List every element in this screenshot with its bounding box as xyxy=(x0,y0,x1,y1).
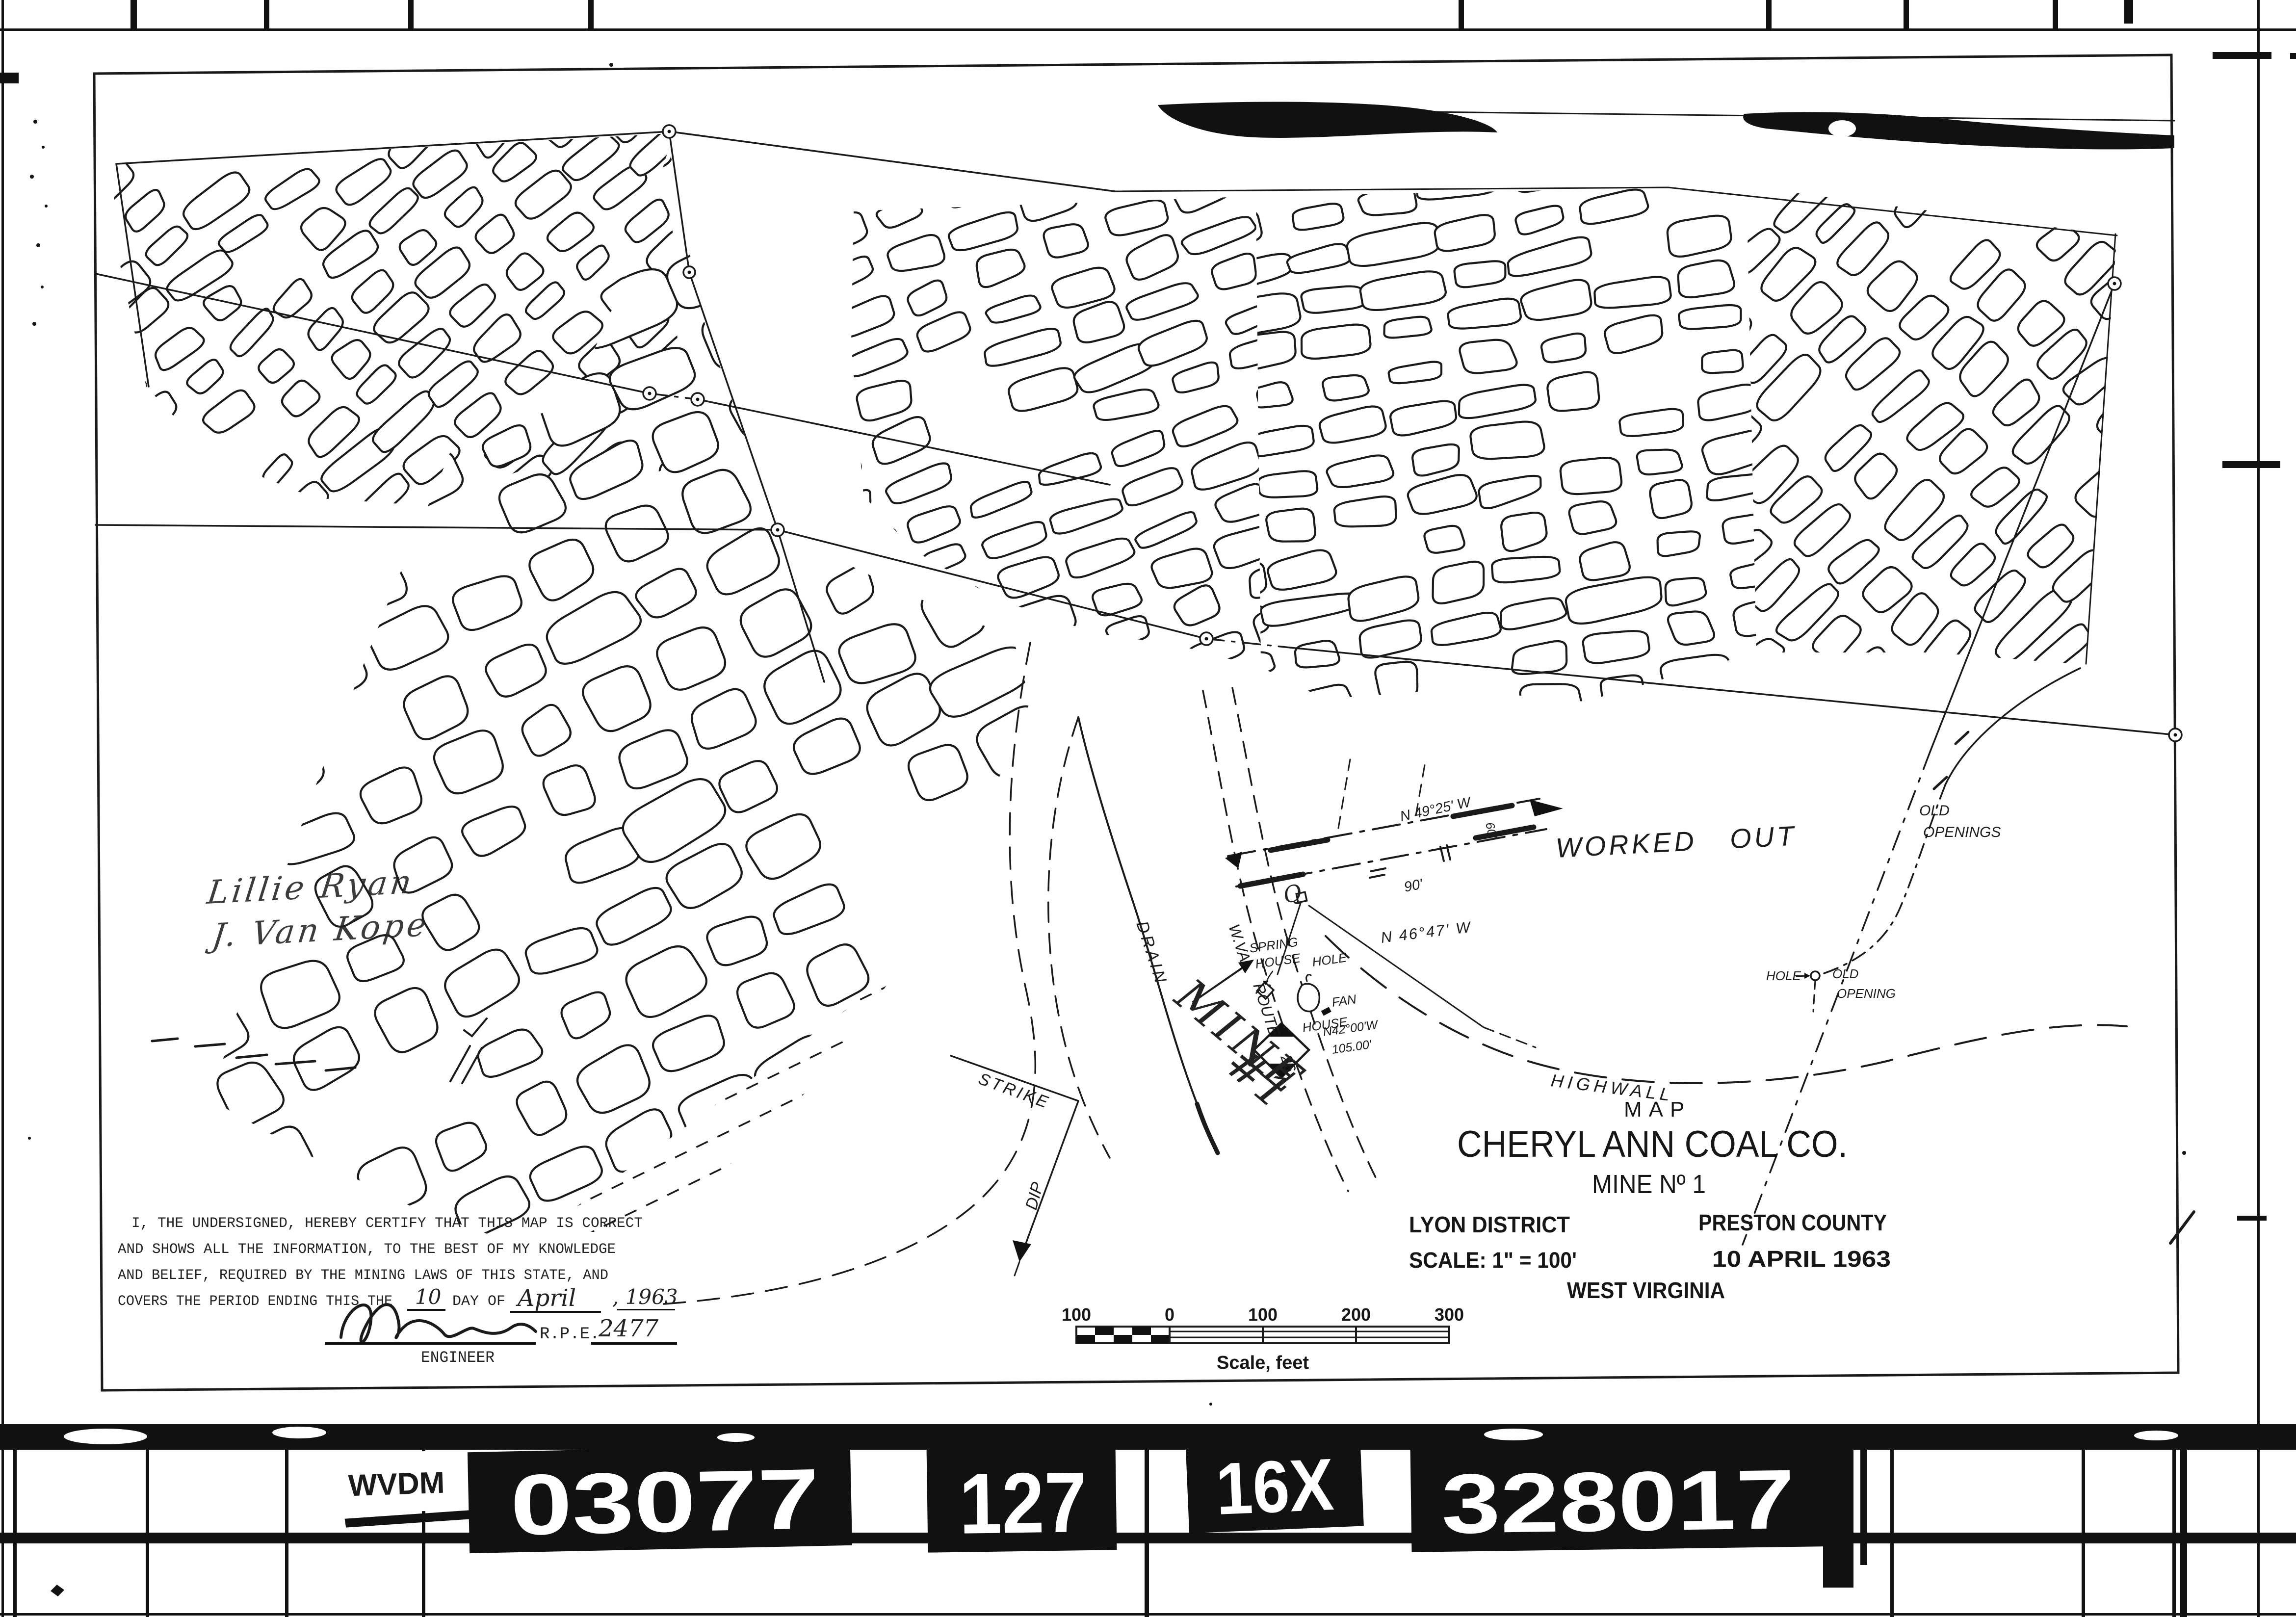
bearing-label: N 49°25' W xyxy=(1399,794,1473,825)
certification-license: 2477 xyxy=(598,1315,659,1342)
coal-pillar xyxy=(1580,190,1648,224)
coal-pillar xyxy=(1515,206,1563,235)
coal-pillar xyxy=(730,375,797,436)
old-openings-label: OLD xyxy=(1919,803,1950,819)
coal-pillar xyxy=(1512,641,1566,674)
coal-pillar xyxy=(1295,641,1339,667)
coal-pillar xyxy=(1302,287,1366,313)
coal-pillar xyxy=(1561,458,1621,494)
coal-pillar xyxy=(284,482,328,524)
coal-pillar xyxy=(1412,444,1459,476)
coal-pillar xyxy=(2018,301,2064,346)
coal-pillar xyxy=(597,888,671,945)
coal-pillar xyxy=(1303,685,1351,709)
coal-pillar xyxy=(265,169,319,209)
coal-pillar xyxy=(757,432,823,490)
coal-pillar xyxy=(1050,499,1122,534)
coal-pillar xyxy=(577,246,608,280)
coal-pillar xyxy=(146,227,187,265)
hole-outline xyxy=(1298,984,1319,1011)
mine-number-title: MINE Nº 1 xyxy=(1592,1170,1706,1199)
coal-pillar xyxy=(930,648,1029,717)
coal-pillar xyxy=(445,950,519,1017)
scale-tick-label: 200 xyxy=(1341,1304,1371,1325)
mine-workings-cluster xyxy=(797,172,1316,668)
q-mark: Q xyxy=(1280,879,1305,909)
coal-pillar xyxy=(1661,655,1732,692)
coal-pillar xyxy=(1349,576,1419,621)
coal-pillar xyxy=(1044,224,1088,257)
coal-pillar xyxy=(682,470,751,533)
coal-pillar xyxy=(91,161,133,203)
coal-pillar xyxy=(1347,223,1439,266)
coal-pillar xyxy=(1323,375,1369,400)
coal-pillar xyxy=(835,296,894,338)
svg-text:OPENINGS: OPENINGS xyxy=(1923,824,2001,840)
strike-label: STRIKE xyxy=(976,1069,1053,1113)
scale-tick-label: 100 xyxy=(1062,1304,1091,1325)
coal-pillar xyxy=(1094,390,1158,420)
coal-pillar xyxy=(1435,215,1495,251)
coal-pillar xyxy=(636,569,696,618)
worked-out-label: WORKED OUT xyxy=(1555,820,1797,863)
coal-pillar xyxy=(692,689,756,749)
coal-pillar xyxy=(1408,475,1477,514)
coal-pillar xyxy=(667,245,739,308)
coal-pillar xyxy=(1846,338,1900,390)
mine-workings xyxy=(74,99,2160,1297)
coal-pillar xyxy=(1679,305,1741,329)
reel-number: 03077 xyxy=(509,1451,820,1553)
agency-code: WVDM xyxy=(348,1466,445,1503)
coal-pillar xyxy=(1501,513,1546,551)
coal-pillar xyxy=(369,606,448,669)
coal-pillar xyxy=(1455,261,1506,287)
coal-pillar xyxy=(429,362,478,407)
coal-pillar xyxy=(611,99,658,142)
coal-pillar xyxy=(832,529,899,566)
coal-pillar xyxy=(1258,471,1317,497)
item-number: 328017 xyxy=(1441,1452,1796,1551)
coal-pillar xyxy=(1521,280,1591,320)
certification-block: I, THE UNDERSIGNED, HEREBY CERTIFY THAT … xyxy=(118,1215,678,1367)
coal-pillar xyxy=(1658,531,1700,556)
coal-pillar xyxy=(476,215,514,253)
coal-pillar xyxy=(827,566,873,614)
coal-pillar xyxy=(370,188,418,234)
coal-pillar xyxy=(887,235,944,271)
coal-pillar xyxy=(1009,368,1077,411)
projected-room-dash xyxy=(458,938,988,1196)
certification-line: AND SHOWS ALL THE INFORMATION, TO THE BE… xyxy=(118,1241,616,1258)
coal-pillar xyxy=(2028,524,2074,567)
coal-pillar xyxy=(620,730,687,788)
certification-line: AND BELIEF, REQUIRED BY THE MINING LAWS … xyxy=(118,1267,608,1284)
scale-caption: Scale, feet xyxy=(1217,1353,1309,1373)
coal-pillar xyxy=(375,988,437,1052)
coal-pillar xyxy=(358,1148,426,1214)
coal-pillar xyxy=(1460,340,1516,373)
coal-pillar xyxy=(478,1030,543,1077)
coal-pillar xyxy=(436,1123,486,1171)
coal-pillar xyxy=(1019,184,1077,221)
coal-pillar xyxy=(1187,632,1244,667)
coal-pillar xyxy=(1666,578,1706,605)
coal-pillar xyxy=(807,944,868,1006)
coal-pillar xyxy=(1951,544,1995,585)
coal-pillar xyxy=(1459,385,1536,418)
coal-pillar xyxy=(483,425,530,467)
coal-pillar xyxy=(657,627,725,690)
coal-pillar xyxy=(1375,662,1417,701)
coal-pillar xyxy=(179,461,230,511)
coal-pillar xyxy=(1520,684,1582,716)
coal-pillar xyxy=(583,666,651,731)
film-code-strip: WVDM 03077 127 16X 328017 xyxy=(0,1424,2296,1617)
reduction-factor: 16X xyxy=(1214,1443,1335,1530)
coal-pillar xyxy=(217,1063,284,1125)
coal-pillar xyxy=(1541,334,1586,363)
fan-label: FAN xyxy=(1331,991,1357,1010)
code-plate: 328017 xyxy=(1410,1441,1826,1552)
coal-pillar xyxy=(183,173,249,230)
coal-pillar xyxy=(1960,658,1997,697)
coal-pillar xyxy=(352,270,393,313)
coal-pillar xyxy=(1126,235,1177,280)
coal-pillar xyxy=(1173,406,1237,446)
hole-symbol xyxy=(1811,971,1820,980)
coal-pillar xyxy=(1389,362,1441,384)
state: WEST VIRGINIA xyxy=(1567,1278,1725,1303)
coal-pillar xyxy=(548,213,594,251)
coal-pillar xyxy=(253,1127,313,1187)
coal-pillar xyxy=(1501,598,1566,629)
coal-pillar xyxy=(1817,204,1855,243)
coal-pillar xyxy=(548,111,587,147)
coal-pillar xyxy=(517,1082,566,1135)
coal-pillar xyxy=(361,767,421,823)
coal-pillar xyxy=(1868,261,1917,311)
coal-pillar xyxy=(1583,631,1649,663)
coal-pillar xyxy=(1074,302,1124,342)
coal-pillar xyxy=(1112,431,1164,466)
handwriting-line: Lillie Ryan xyxy=(205,862,417,912)
coal-pillar xyxy=(1750,559,1799,611)
coal-pillar xyxy=(1432,613,1501,645)
coal-pillar xyxy=(1360,621,1421,658)
coal-pillar xyxy=(1993,380,2039,425)
coal-pillar xyxy=(1192,443,1260,490)
coal-pillar xyxy=(522,705,571,756)
coal-pillar xyxy=(453,576,522,630)
coal-pillar xyxy=(336,159,391,205)
coal-pillar xyxy=(499,474,566,532)
coal-pillar xyxy=(626,946,706,1017)
coal-pillar xyxy=(1594,277,1670,308)
coal-pillar xyxy=(908,506,960,542)
coal-pillar xyxy=(909,745,967,800)
coal-pillar xyxy=(1268,550,1336,590)
coal-pillar xyxy=(2097,386,2156,442)
coal-pillar xyxy=(486,645,546,697)
coal-pillar xyxy=(74,232,108,265)
coal-pillar xyxy=(282,381,319,417)
coal-pillar xyxy=(703,307,756,368)
coal-pillar xyxy=(1293,204,1344,230)
coal-pillar xyxy=(626,200,669,242)
coal-pillar xyxy=(1885,480,1944,540)
map-word: MAP xyxy=(1624,1097,1691,1121)
coal-pillar xyxy=(1250,426,1314,456)
coal-pillar xyxy=(653,412,718,472)
coal-pillar xyxy=(131,392,176,437)
coal-pillar xyxy=(360,474,409,522)
coal-pillar xyxy=(977,706,1051,777)
coal-pillar xyxy=(357,365,396,404)
coal-pillar xyxy=(986,296,1041,323)
scale-tick-label: 300 xyxy=(1435,1304,1464,1325)
coal-pillar xyxy=(1650,480,1691,518)
coal-pillar xyxy=(1446,696,1502,724)
coal-pillar xyxy=(462,807,525,856)
mine-map-scan: WORKED OUT HIGHWALL OLD OPENINGS HOLE OL… xyxy=(0,0,2296,1617)
coal-pillar xyxy=(1390,401,1456,436)
coal-pillar xyxy=(1106,616,1149,645)
coal-pillar xyxy=(1873,370,1929,422)
old-opening-label: OLD xyxy=(1832,966,1858,981)
coal-pillar xyxy=(455,393,500,437)
coal-pillar xyxy=(309,308,343,350)
coal-pillar xyxy=(857,381,912,420)
coal-pillar xyxy=(797,212,867,257)
coal-pillar xyxy=(1900,296,1948,339)
frame-number: 127 xyxy=(959,1455,1088,1552)
coal-pillar xyxy=(707,528,779,594)
coal-pillar xyxy=(1580,542,1629,580)
coal-pillar xyxy=(1678,261,1734,297)
scale-bar: 100 0 100 200 300 Scale, feet xyxy=(1062,1304,1464,1373)
coal-pillar xyxy=(1302,325,1370,359)
scale-tick-label: 100 xyxy=(1248,1304,1278,1325)
coal-pillar xyxy=(277,813,354,864)
dip-label: DIP xyxy=(1022,1180,1047,1212)
coal-pillar xyxy=(922,581,985,647)
coal-pillar xyxy=(294,1027,359,1090)
coal-pillar xyxy=(794,719,860,774)
district: LYON DISTRICT xyxy=(1409,1212,1570,1237)
coal-pillar xyxy=(1448,299,1521,329)
coal-pillar xyxy=(877,200,922,228)
handwritten-note: Lillie Ryan J. Van Kope xyxy=(204,862,431,955)
coal-pillar xyxy=(1492,557,1560,582)
coal-pillar xyxy=(1173,172,1233,212)
coal-pillar xyxy=(1066,539,1134,577)
coal-pillar xyxy=(824,490,870,523)
coal-pillar xyxy=(526,283,564,319)
coal-pillar xyxy=(156,328,204,370)
certification-day: 10 xyxy=(415,1285,441,1309)
coal-pillar xyxy=(476,121,511,157)
coal-pillar xyxy=(187,360,223,393)
coal-pillar xyxy=(1698,385,1758,420)
coal-pillar xyxy=(422,895,479,950)
coal-pillar xyxy=(231,309,273,356)
hole-label-left: HOLE xyxy=(1311,950,1348,969)
coal-pillar xyxy=(810,450,861,486)
coal-pillar xyxy=(2114,193,2160,242)
fan-symbol xyxy=(1321,1007,1331,1016)
coal-pillar xyxy=(1105,200,1168,235)
coal-pillar xyxy=(1139,321,1207,365)
coal-pillar xyxy=(413,151,467,198)
hole-label: HOLE xyxy=(1766,968,1801,983)
coal-pillar xyxy=(516,171,571,219)
coal-pillar xyxy=(1287,244,1351,273)
coal-pillar xyxy=(917,312,970,351)
coal-pillar xyxy=(404,676,468,739)
coal-pillar xyxy=(977,250,1025,287)
coal-pillar xyxy=(1173,363,1218,392)
coal-pillar xyxy=(1126,283,1198,320)
coal-pillar xyxy=(1327,455,1394,487)
coal-pillar xyxy=(353,545,407,608)
coal-pillar xyxy=(1261,594,1359,626)
coal-pillar xyxy=(450,285,495,327)
company-name: CHERYL ANN COAL CO. xyxy=(1457,1123,1848,1165)
coal-pillar xyxy=(530,1147,602,1200)
coal-pillar xyxy=(261,746,324,803)
coal-pillar xyxy=(679,1075,762,1132)
coal-pillar xyxy=(1266,509,1315,542)
coal-pillar xyxy=(1813,616,1860,659)
coal-pillar xyxy=(867,674,940,745)
coal-pillar xyxy=(1479,476,1541,508)
coal-pillar xyxy=(1417,172,1496,200)
coal-pillar xyxy=(193,1007,248,1060)
coal-pillar xyxy=(259,349,294,383)
coal-pillar xyxy=(203,391,254,433)
coal-pillar xyxy=(764,651,840,724)
coal-pillar xyxy=(653,1016,724,1071)
coal-pillar xyxy=(1975,571,2025,622)
coal-pillar xyxy=(1863,567,1911,612)
coal-pillar xyxy=(949,212,1018,250)
film-ink-blob xyxy=(1158,102,1497,138)
scale-tick-label: 0 xyxy=(1165,1304,1174,1325)
coal-pillar xyxy=(1384,317,1431,338)
certification-line: COVERS THE PERIOD ENDING THIS THE xyxy=(118,1293,392,1310)
coal-pillar xyxy=(719,761,777,812)
coal-pillar xyxy=(1978,269,2025,320)
coal-pillar xyxy=(400,230,436,265)
coal-pillar xyxy=(2075,466,2126,517)
coal-pillar xyxy=(332,340,370,379)
title-block: MAP CHERYL ANN COAL CO. MINE Nº 1 LYON D… xyxy=(1409,1097,1891,1303)
coal-pillar xyxy=(263,454,292,487)
coal-pillar xyxy=(1971,468,2019,506)
coal-pillar xyxy=(1940,429,1987,474)
coal-pillar xyxy=(274,279,312,317)
coal-pillar xyxy=(840,1002,896,1063)
coal-pillar xyxy=(774,885,844,934)
coal-pillar xyxy=(1470,422,1544,459)
coal-pillar xyxy=(562,992,610,1039)
coal-pillar xyxy=(945,174,987,208)
coal-pillar xyxy=(1212,254,1256,289)
coal-pillar xyxy=(1508,237,1592,276)
coal-pillar xyxy=(1360,271,1446,310)
coal-pillar xyxy=(1731,229,1780,274)
coal-pillar xyxy=(1547,372,1599,411)
coal-pillar xyxy=(839,624,915,683)
coal-pillar xyxy=(998,557,1058,598)
coal-pillar xyxy=(1182,217,1256,254)
coal-pillar xyxy=(507,253,544,289)
coal-pillar xyxy=(1249,382,1292,407)
width-label: 90' xyxy=(1403,876,1425,895)
code-plate: 03077 xyxy=(468,1444,852,1554)
coal-pillar xyxy=(1637,450,1682,475)
coal-pillar xyxy=(1668,216,1731,257)
coal-pillar xyxy=(544,765,595,815)
coal-pillar xyxy=(261,961,339,1028)
highwall-dashed-line xyxy=(1326,936,2127,1083)
svg-text:105.00': 105.00' xyxy=(1331,1038,1373,1057)
certification-month: April xyxy=(516,1284,576,1312)
coal-pillar xyxy=(126,190,164,232)
certification-dayof: DAY OF xyxy=(452,1293,505,1310)
coal-pillar xyxy=(606,506,668,562)
code-plate: 16X xyxy=(1185,1433,1364,1534)
coal-pillar xyxy=(1842,648,1892,700)
drain-label: DRAIN xyxy=(1132,919,1171,988)
coal-pillar xyxy=(667,844,742,908)
coal-pillar xyxy=(1619,409,1683,436)
coal-pillar xyxy=(1566,577,1662,624)
coal-pillar xyxy=(1135,512,1196,548)
coal-pillar xyxy=(298,649,366,704)
coal-pillar xyxy=(1837,222,1888,275)
coal-pillar xyxy=(103,372,146,411)
coal-pillar xyxy=(741,589,811,656)
coal-pillar xyxy=(1855,454,1897,499)
coal-pillar xyxy=(1358,186,1416,215)
coal-pillar xyxy=(1151,548,1212,588)
coal-pillar xyxy=(1668,611,1714,645)
worked-out-strip xyxy=(1225,759,1563,1047)
coal-pillar xyxy=(434,730,503,793)
coal-pillar xyxy=(985,329,1061,365)
coal-pillar xyxy=(219,215,268,252)
county: PRESTON COUNTY xyxy=(1698,1210,1887,1235)
engineer-label: ENGINEER xyxy=(421,1349,495,1367)
coal-pillar xyxy=(1731,639,1784,683)
coal-pillar xyxy=(301,208,345,250)
coal-pillar xyxy=(529,540,593,600)
coal-pillar xyxy=(1569,501,1617,534)
coal-pillar xyxy=(1093,584,1142,615)
certification-year: , 1963 xyxy=(612,1285,678,1309)
coal-pillar xyxy=(1334,496,1396,526)
coal-pillar xyxy=(737,973,794,1028)
coal-pillar xyxy=(908,281,946,315)
coal-pillar xyxy=(1174,585,1220,625)
code-plate: 127 xyxy=(927,1446,1117,1552)
scale-bar-body xyxy=(1076,1327,1449,1343)
coal-pillar xyxy=(1210,652,1275,679)
coal-pillar xyxy=(1751,137,1803,184)
map-scale: SCALE: 1" = 100' xyxy=(1409,1248,1577,1273)
